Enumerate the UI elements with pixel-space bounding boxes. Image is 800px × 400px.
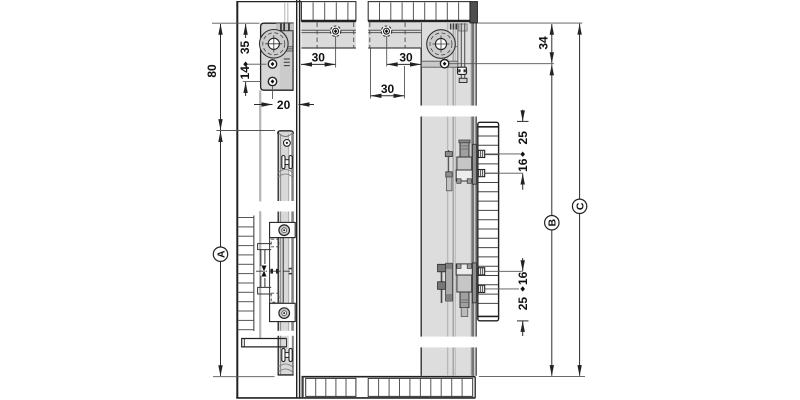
svg-text:16: 16 bbox=[516, 158, 530, 172]
svg-text:20: 20 bbox=[277, 98, 291, 112]
svg-text:C: C bbox=[574, 202, 586, 210]
svg-text:34: 34 bbox=[536, 36, 550, 50]
svg-text:30: 30 bbox=[399, 51, 413, 65]
svg-text:25: 25 bbox=[516, 131, 530, 145]
svg-text:25: 25 bbox=[516, 297, 530, 311]
svg-text:30: 30 bbox=[312, 51, 326, 65]
svg-text:16: 16 bbox=[516, 271, 530, 285]
svg-text:80: 80 bbox=[205, 64, 219, 78]
svg-text:35: 35 bbox=[238, 41, 252, 55]
svg-text:A: A bbox=[215, 250, 227, 258]
svg-text:B: B bbox=[547, 218, 559, 226]
svg-text:14: 14 bbox=[238, 66, 252, 80]
svg-text:30: 30 bbox=[381, 82, 395, 96]
